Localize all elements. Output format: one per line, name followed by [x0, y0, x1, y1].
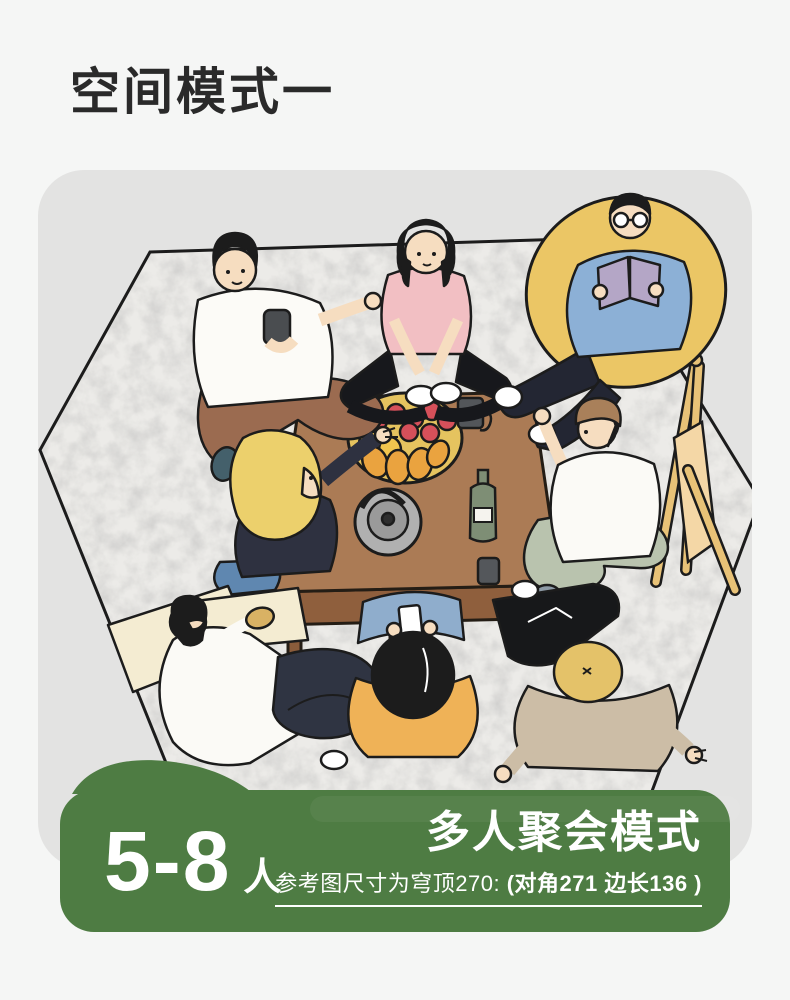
size-note-prefix: 参考图尺寸为穹顶270: — [275, 871, 506, 896]
banner-bump-shape — [70, 754, 256, 794]
page-title: 空间模式一 — [70, 52, 335, 124]
capacity-banner: 5-8 人 多人聚会模式 参考图尺寸为穹顶270: (对角271 边长136 ) — [60, 790, 730, 932]
size-note-dimensions: (对角271 边长136 ) — [507, 871, 702, 896]
size-note: 参考图尺寸为穹顶270: (对角271 边长136 ) — [275, 866, 702, 907]
capacity-number: 5-8 — [104, 819, 231, 903]
banner-right-block: 多人聚会模式 参考图尺寸为穹顶270: (对角271 边长136 ) — [275, 808, 702, 907]
kettle — [355, 489, 421, 555]
mode-title: 多人聚会模式 — [275, 808, 702, 859]
cup — [478, 558, 499, 584]
capacity-label: 5-8 人 — [104, 819, 281, 903]
product-detail-page: 空间模式一 — [0, 0, 790, 1000]
